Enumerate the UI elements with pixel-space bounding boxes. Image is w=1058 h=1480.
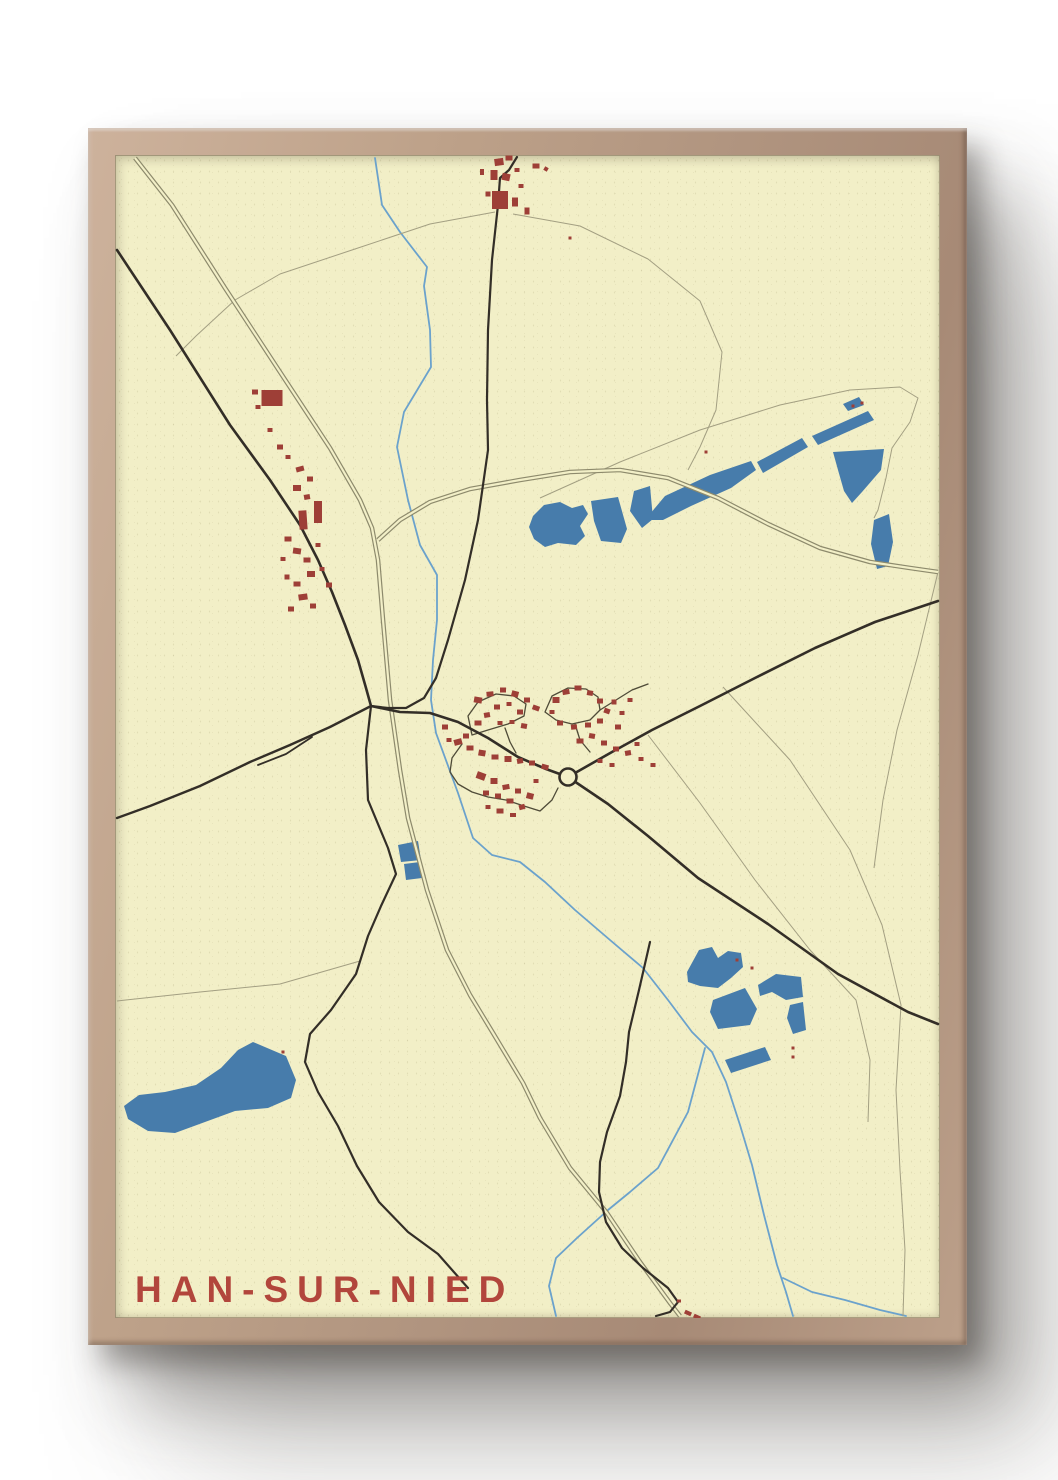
building [507,799,514,804]
building [543,166,548,171]
building [532,704,540,711]
building [507,702,512,706]
building [447,738,452,742]
building [589,733,596,739]
building [529,761,535,766]
building [476,771,487,781]
building [502,784,510,790]
building [639,757,644,761]
roundabout-layer [560,769,577,786]
building-dot [852,405,855,408]
village-lane-south [450,744,558,811]
roundabout [560,769,577,786]
village-lane-c [600,684,648,710]
building [550,710,555,714]
gallery-wall: HAN-SUR-NIED [0,0,1058,1480]
building [553,697,560,703]
building [635,742,640,746]
building [625,750,632,756]
building-dot [751,967,754,970]
lake-southwest [124,1042,296,1133]
village-lane-b [575,724,590,752]
building [295,466,304,473]
pond-bar-1 [591,497,627,543]
building [294,582,301,587]
pond-bar-2 [630,486,653,528]
building [298,593,308,600]
pond-bar-3 [757,438,808,473]
building [506,156,513,161]
field-line-southeast-a [648,735,870,1122]
building [524,698,530,703]
pond-group-b [710,988,757,1029]
building [285,537,292,542]
building [310,604,316,609]
building [517,710,523,715]
building [601,741,607,746]
building [510,720,515,724]
pond-group-c [758,974,803,1000]
building [277,445,283,450]
railway-layer [135,158,938,1316]
building-dot [792,1056,795,1059]
building [610,763,615,767]
road-junction-west [117,706,371,818]
building [281,557,286,561]
building [510,813,516,817]
building [557,721,563,726]
building [515,168,520,172]
building [304,494,311,500]
building [577,739,584,744]
building [651,763,656,767]
building [326,583,332,588]
stream-fork-southeast [783,1278,906,1316]
road-junction-south-winding [305,706,468,1288]
building [474,696,483,703]
building [307,477,313,482]
building [498,721,503,725]
stream-main [375,158,793,1316]
building [501,173,510,182]
building [598,759,603,763]
road-roundabout-northeast [568,601,938,777]
building [252,390,258,395]
building [677,1300,681,1303]
building [525,208,530,215]
building [307,571,315,577]
building [517,758,524,764]
building [587,690,594,696]
building [541,764,549,771]
building [480,169,484,175]
building [597,699,603,704]
building [293,485,301,491]
building [526,792,534,800]
road-junction-west-branch [258,737,312,765]
railway-main-center [135,158,680,1316]
building [293,547,302,554]
building [494,158,504,166]
building [478,749,486,756]
building [285,575,290,580]
building [492,191,508,209]
building [491,170,498,180]
building [442,725,448,730]
building [483,791,489,796]
building [486,691,493,697]
building [575,686,582,691]
railway-main [135,158,680,1316]
building [288,607,294,612]
building [505,756,512,762]
poster-title: HAN-SUR-NIED [135,1269,514,1311]
field-line-east-curve [874,572,938,868]
building [620,711,625,715]
building-dot [736,959,739,962]
building [511,690,519,698]
map-poster-paper: HAN-SUR-NIED [115,155,940,1318]
building [491,778,498,784]
road-north-village-south [371,157,517,708]
building [603,708,610,715]
building [585,723,591,728]
road-roundabout-southeast [568,777,938,1024]
pond-group-a [687,947,743,988]
building [475,721,482,726]
building [256,405,261,409]
building [316,543,321,547]
building [486,805,491,809]
building [486,192,491,197]
pond-cluster-west [529,502,588,547]
pond-triangle [833,449,884,503]
building [494,705,500,710]
building [495,794,501,799]
building [497,809,504,814]
field-line-west [117,961,360,1001]
building [684,1310,692,1317]
building [533,164,540,169]
building [534,779,539,783]
building-dot [569,237,572,240]
building [613,747,619,752]
building-dot [705,451,708,454]
building [612,700,617,705]
road-layer [117,157,938,1316]
building [500,688,506,693]
building [571,724,577,730]
building [521,723,528,729]
building [515,789,521,794]
building [320,567,325,571]
building [519,184,524,188]
building [512,198,518,207]
building [597,719,603,724]
field-line-north-arc [513,214,722,470]
building [268,428,273,432]
building [492,755,499,760]
building [262,390,283,406]
water-layer [124,158,906,1316]
building [286,455,291,459]
building [314,501,322,523]
pond-bar-4 [812,411,874,445]
boundary-layer [117,212,938,1316]
pond-group-d [787,1002,806,1034]
road-northwest-to-village [117,250,568,777]
building [304,558,311,563]
building [463,734,469,739]
building-dot [861,402,864,405]
pond-group-e [725,1047,771,1073]
stream-branch-southwest [549,1048,705,1316]
building [615,725,621,730]
map-canvas [115,155,940,1318]
building-dot [282,1051,285,1054]
poster-frame: HAN-SUR-NIED [88,128,967,1345]
building [484,712,491,718]
building [693,1314,701,1318]
building [298,510,307,530]
building [628,698,633,702]
building-dot [792,1047,795,1050]
building [467,746,474,751]
